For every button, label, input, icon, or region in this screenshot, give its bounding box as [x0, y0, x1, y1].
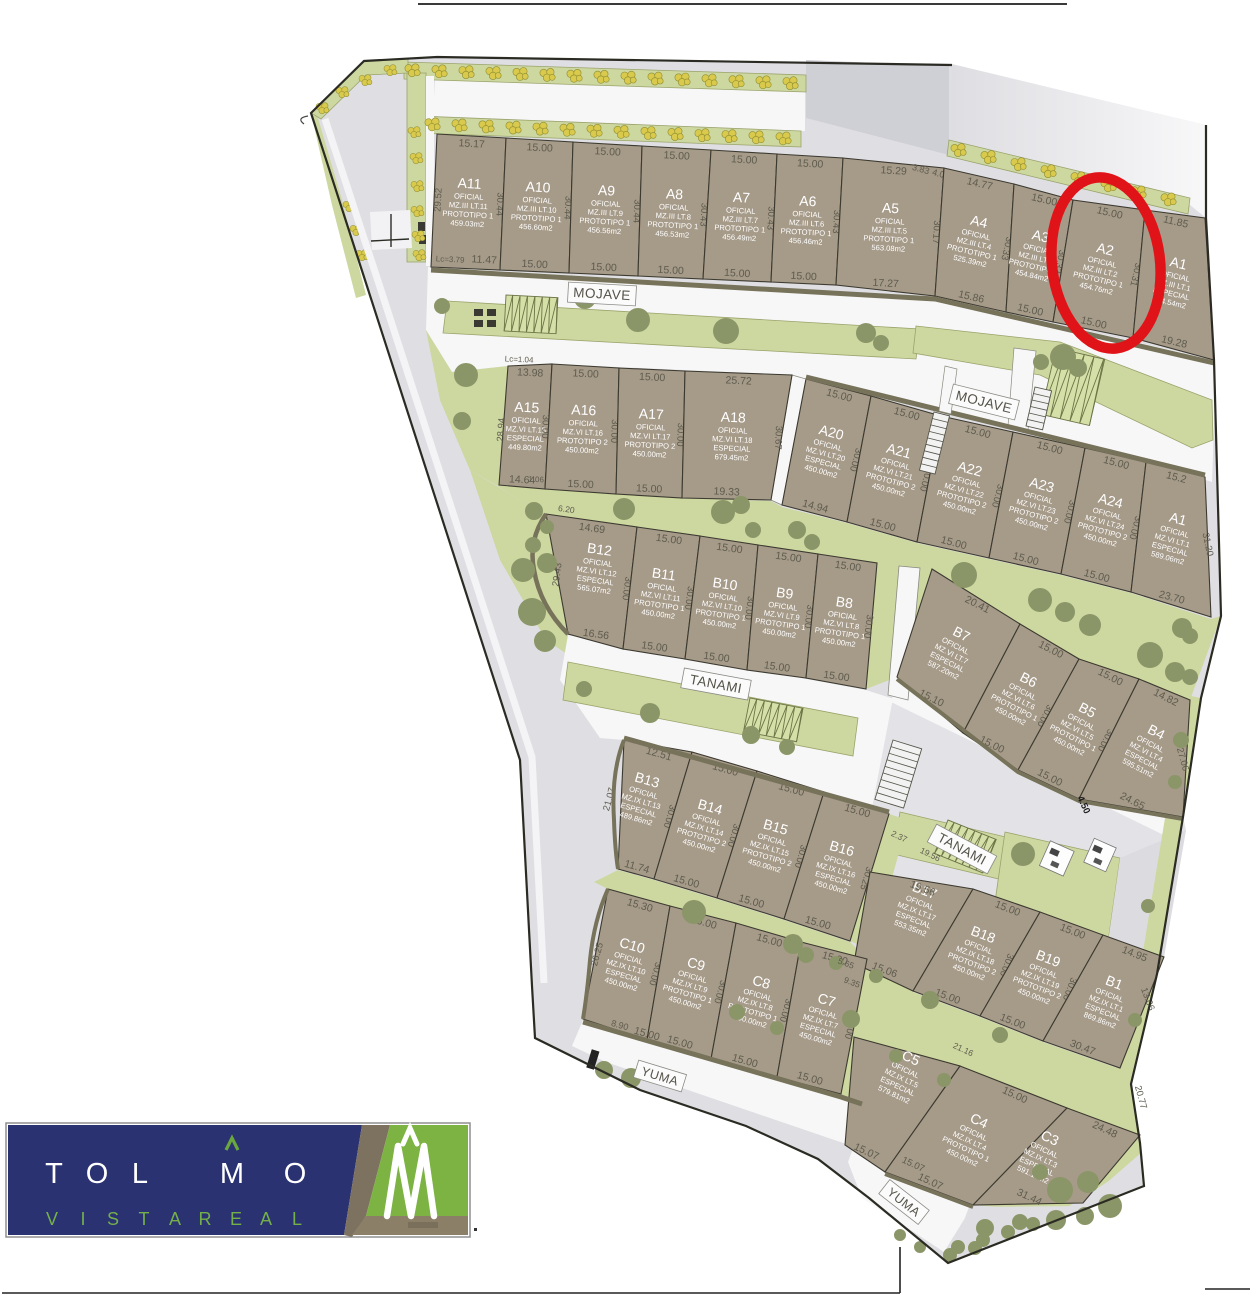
svg-text:15.00: 15.00	[526, 141, 553, 154]
svg-text:A7: A7	[733, 189, 751, 206]
svg-text:O: O	[284, 1158, 307, 1190]
svg-text:L: L	[292, 1209, 302, 1229]
svg-text:1.06: 1.06	[528, 475, 545, 485]
svg-text:A: A	[169, 1209, 181, 1229]
svg-text:B9: B9	[775, 584, 794, 602]
svg-text:15.00: 15.00	[567, 478, 594, 491]
svg-text:15.00: 15.00	[636, 482, 663, 495]
svg-text:15.00: 15.00	[724, 267, 751, 280]
svg-text:E: E	[230, 1209, 242, 1229]
svg-text:456.49m2: 456.49m2	[722, 232, 756, 243]
svg-text:15.00: 15.00	[590, 261, 617, 274]
svg-text:A6: A6	[799, 192, 817, 209]
svg-text:A11: A11	[457, 175, 482, 192]
svg-text:15.00: 15.00	[790, 270, 817, 283]
svg-text:B11: B11	[651, 564, 677, 583]
svg-text:456.56m2: 456.56m2	[587, 225, 621, 236]
svg-text:11.47: 11.47	[471, 253, 497, 266]
svg-text:A15: A15	[514, 398, 540, 415]
svg-text:MOJAVE: MOJAVE	[573, 285, 631, 303]
svg-text:456.60m2: 456.60m2	[519, 222, 553, 233]
svg-text:I: I	[80, 1209, 85, 1229]
svg-text:A18: A18	[721, 408, 747, 425]
svg-text:563.08m2: 563.08m2	[871, 243, 905, 254]
svg-text:450.00m2: 450.00m2	[565, 445, 599, 456]
svg-text:M: M	[220, 1158, 244, 1190]
svg-text:15.00: 15.00	[594, 145, 621, 158]
svg-text:V: V	[46, 1209, 58, 1229]
svg-text:T: T	[45, 1158, 63, 1190]
svg-text:19.33: 19.33	[713, 485, 740, 498]
svg-text:15.17: 15.17	[458, 137, 485, 150]
svg-text:B8: B8	[835, 593, 854, 611]
svg-text:30.67: 30.67	[772, 425, 784, 449]
svg-text:A9: A9	[598, 182, 616, 199]
svg-text:15.29: 15.29	[880, 164, 907, 177]
svg-text:17.27: 17.27	[872, 277, 899, 290]
svg-text:A5: A5	[882, 199, 900, 216]
svg-text:15.00: 15.00	[639, 371, 666, 384]
svg-text:15.00: 15.00	[731, 153, 758, 166]
svg-text:A8: A8	[666, 185, 684, 202]
svg-text:S: S	[107, 1209, 119, 1229]
svg-text:A16: A16	[571, 401, 597, 418]
svg-text:456.53m2: 456.53m2	[655, 229, 689, 240]
svg-text:456.46m2: 456.46m2	[788, 236, 822, 247]
svg-text:15.00: 15.00	[572, 367, 599, 380]
svg-text:450.00m2: 450.00m2	[632, 449, 666, 460]
svg-text:A10: A10	[525, 178, 551, 195]
svg-text:A17: A17	[639, 405, 665, 422]
svg-text:O: O	[86, 1158, 109, 1190]
svg-text:A: A	[260, 1209, 272, 1229]
svg-text:29.52: 29.52	[432, 188, 444, 212]
svg-text:T: T	[139, 1209, 150, 1229]
svg-text:Lc=3.79: Lc=3.79	[436, 254, 466, 265]
svg-text:449.80m2: 449.80m2	[508, 442, 542, 453]
svg-text:15.00: 15.00	[797, 157, 824, 170]
svg-text:15.00: 15.00	[663, 149, 690, 162]
svg-text:25.72: 25.72	[725, 374, 752, 387]
svg-text:679.45m2: 679.45m2	[714, 452, 748, 463]
svg-text:13.98: 13.98	[517, 366, 544, 379]
svg-text:459.03m2: 459.03m2	[450, 218, 484, 229]
svg-text:R: R	[199, 1209, 212, 1229]
svg-text:15.00: 15.00	[521, 258, 548, 271]
svg-text:L: L	[132, 1158, 148, 1190]
svg-text:28.94: 28.94	[495, 418, 508, 442]
svg-text:15.00: 15.00	[657, 264, 684, 277]
svg-text:Lc=1.04: Lc=1.04	[505, 354, 535, 364]
